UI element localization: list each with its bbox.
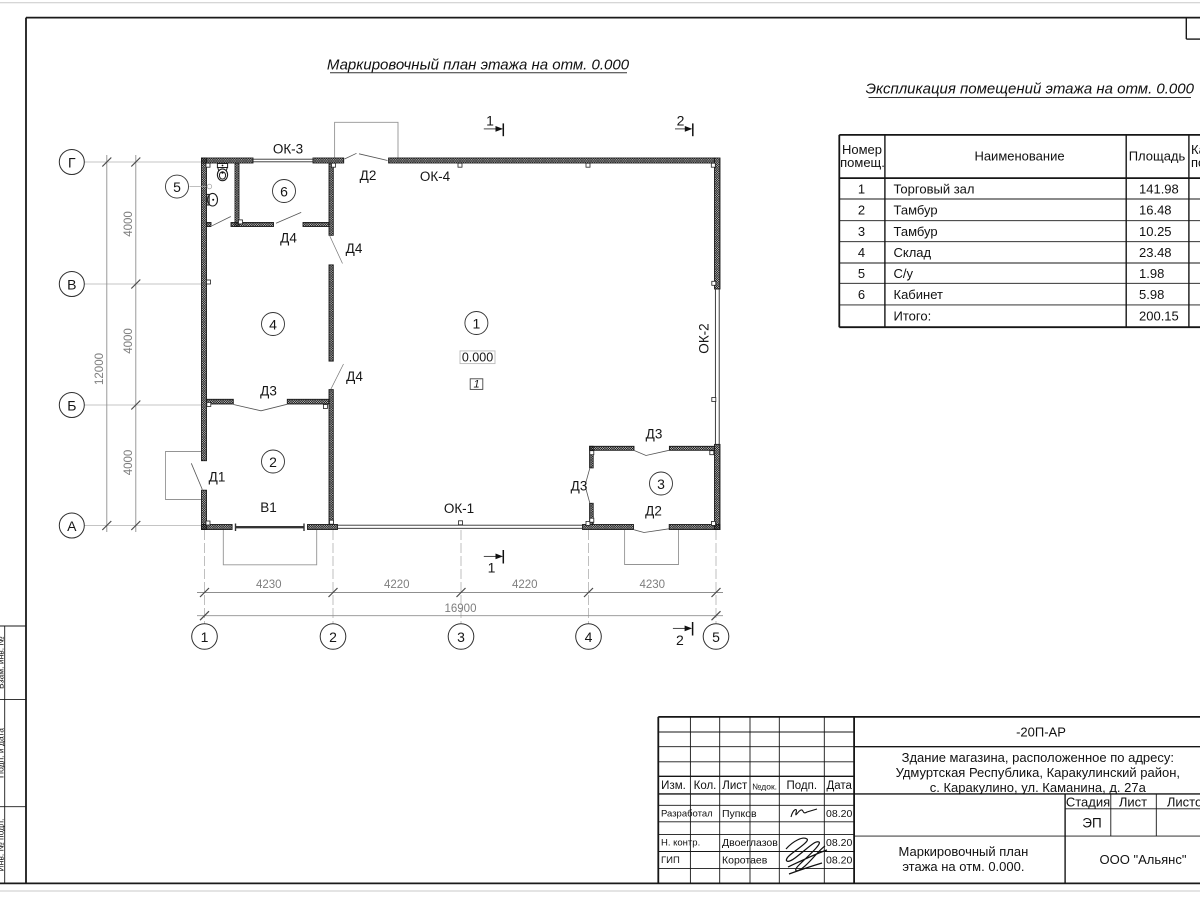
svg-text:помещ.: помещ. xyxy=(840,155,885,170)
svg-text:6: 6 xyxy=(280,184,288,200)
svg-text:1: 1 xyxy=(201,629,209,645)
svg-text:3: 3 xyxy=(858,224,865,239)
svg-text:Торговый зал: Торговый зал xyxy=(894,182,975,197)
svg-text:Лист: Лист xyxy=(1119,794,1147,809)
svg-text:1: 1 xyxy=(486,112,494,128)
svg-text:Д4: Д4 xyxy=(346,369,363,384)
svg-text:Маркировочный план этажа на от: Маркировочный план этажа на отм. 0.000 xyxy=(327,56,630,73)
svg-text:ОК-1: ОК-1 xyxy=(444,501,474,516)
svg-text:Подп.: Подп. xyxy=(787,780,818,792)
svg-text:5: 5 xyxy=(173,179,181,195)
svg-text:Экспликация помещений этажа на: Экспликация помещений этажа на отм. 0.00… xyxy=(866,81,1195,98)
svg-text:Подп. и дата: Подп. и дата xyxy=(0,728,5,778)
svg-text:Наименование: Наименование xyxy=(974,149,1064,164)
svg-text:Д2: Д2 xyxy=(360,168,377,183)
svg-text:Тамбур: Тамбур xyxy=(894,224,938,239)
svg-text:4220: 4220 xyxy=(384,579,410,591)
svg-text:Кол.: Кол. xyxy=(694,780,717,792)
svg-text:Лист: Лист xyxy=(722,780,748,792)
svg-text:Коротаев: Коротаев xyxy=(722,854,768,866)
svg-text:Д3: Д3 xyxy=(646,427,663,442)
svg-text:Б: Б xyxy=(67,398,76,414)
svg-text:помещения: помещения xyxy=(1191,155,1200,170)
svg-text:2: 2 xyxy=(329,629,337,645)
svg-text:2: 2 xyxy=(676,632,684,648)
svg-text:Удмуртская Республика, Каракул: Удмуртская Республика, Каракулинский рай… xyxy=(896,765,1180,780)
svg-text:Склад: Склад xyxy=(894,245,932,260)
svg-text:1: 1 xyxy=(488,559,496,575)
svg-text:Д2: Д2 xyxy=(645,504,662,519)
svg-text:Д3: Д3 xyxy=(260,384,277,399)
svg-text:5: 5 xyxy=(858,266,865,281)
svg-text:Площадь: Площадь xyxy=(1129,149,1186,164)
svg-text:В1: В1 xyxy=(260,500,277,515)
svg-text:Кабинет: Кабинет xyxy=(894,287,943,302)
svg-text:3: 3 xyxy=(657,476,665,492)
svg-text:2: 2 xyxy=(269,454,277,470)
svg-text:08.20: 08.20 xyxy=(826,808,852,820)
svg-text:4000: 4000 xyxy=(123,328,135,354)
svg-text:Д4: Д4 xyxy=(280,231,297,246)
svg-text:4: 4 xyxy=(585,629,593,645)
svg-text:1.98: 1.98 xyxy=(1139,266,1164,281)
svg-text:Дата: Дата xyxy=(826,780,852,792)
svg-text:141.98: 141.98 xyxy=(1139,182,1179,197)
svg-text:1: 1 xyxy=(473,316,481,332)
svg-text:4: 4 xyxy=(858,245,865,260)
svg-text:23.48: 23.48 xyxy=(1139,245,1172,260)
svg-text:Тамбур: Тамбур xyxy=(894,203,938,218)
svg-text:10.25: 10.25 xyxy=(1139,224,1172,239)
svg-text:Взам. инв. №: Взам. инв. № xyxy=(0,636,5,689)
svg-text:16900: 16900 xyxy=(445,603,477,615)
svg-text:4000: 4000 xyxy=(123,211,135,237)
svg-text:Д3: Д3 xyxy=(571,479,588,494)
svg-text:2: 2 xyxy=(858,203,865,218)
svg-text:Г: Г xyxy=(68,155,76,171)
svg-text:Д4: Д4 xyxy=(346,241,363,256)
svg-text:4220: 4220 xyxy=(512,579,538,591)
svg-text:Маркировочный план: Маркировочный план xyxy=(899,844,1029,859)
svg-text:Итого:: Итого: xyxy=(894,309,932,324)
svg-text:№док.: №док. xyxy=(752,782,777,792)
svg-text:ЭП: ЭП xyxy=(1082,815,1101,830)
svg-text:2: 2 xyxy=(677,112,685,128)
svg-text:Н. контр.: Н. контр. xyxy=(661,838,700,849)
svg-text:Разработал: Разработал xyxy=(661,808,713,819)
svg-text:этажа на отм. 0.000.: этажа на отм. 0.000. xyxy=(902,859,1024,874)
svg-text:08.20: 08.20 xyxy=(826,854,852,866)
svg-text:4: 4 xyxy=(269,317,277,333)
svg-text:Пупков: Пупков xyxy=(722,808,757,820)
svg-text:В: В xyxy=(67,277,76,293)
svg-text:12000: 12000 xyxy=(94,353,106,385)
svg-text:ОК-4: ОК-4 xyxy=(420,169,451,184)
svg-text:ГИП: ГИП xyxy=(661,855,680,866)
svg-text:08.20: 08.20 xyxy=(826,837,852,849)
svg-text:3: 3 xyxy=(457,629,465,645)
svg-text:5.98: 5.98 xyxy=(1139,287,1164,302)
svg-text:А: А xyxy=(67,518,77,534)
svg-text:Д1: Д1 xyxy=(209,470,226,485)
svg-text:с. Каракулино, ул. Каманина, д: с. Каракулино, ул. Каманина, д. 27а xyxy=(930,780,1147,795)
svg-text:5: 5 xyxy=(712,629,720,645)
svg-text:1: 1 xyxy=(858,182,865,197)
svg-text:4000: 4000 xyxy=(123,450,135,476)
svg-text:-20П-АР: -20П-АР xyxy=(1016,724,1066,739)
svg-text:Изм.: Изм. xyxy=(661,780,686,792)
svg-text:6: 6 xyxy=(858,287,865,302)
svg-text:ОК-2: ОК-2 xyxy=(697,323,712,353)
svg-text:ООО "Альянс": ООО "Альянс" xyxy=(1100,852,1187,867)
svg-text:4230: 4230 xyxy=(256,579,282,591)
svg-text:0.000: 0.000 xyxy=(462,351,493,365)
svg-text:4230: 4230 xyxy=(640,579,666,591)
svg-text:Листов: Листов xyxy=(1167,794,1200,809)
svg-text:Здание магазина, расположенное: Здание магазина, расположенное по адресу… xyxy=(902,750,1174,765)
svg-text:Двоеглазов: Двоеглазов xyxy=(722,837,778,849)
svg-text:Стадия: Стадия xyxy=(1066,794,1110,809)
svg-text:ОК-3: ОК-3 xyxy=(273,141,303,156)
svg-text:С/у: С/у xyxy=(894,266,914,281)
svg-text:200.15: 200.15 xyxy=(1139,309,1179,324)
svg-text:Инв. № подл.: Инв. № подл. xyxy=(0,819,5,872)
svg-text:1: 1 xyxy=(473,378,479,390)
svg-text:16.48: 16.48 xyxy=(1139,203,1172,218)
